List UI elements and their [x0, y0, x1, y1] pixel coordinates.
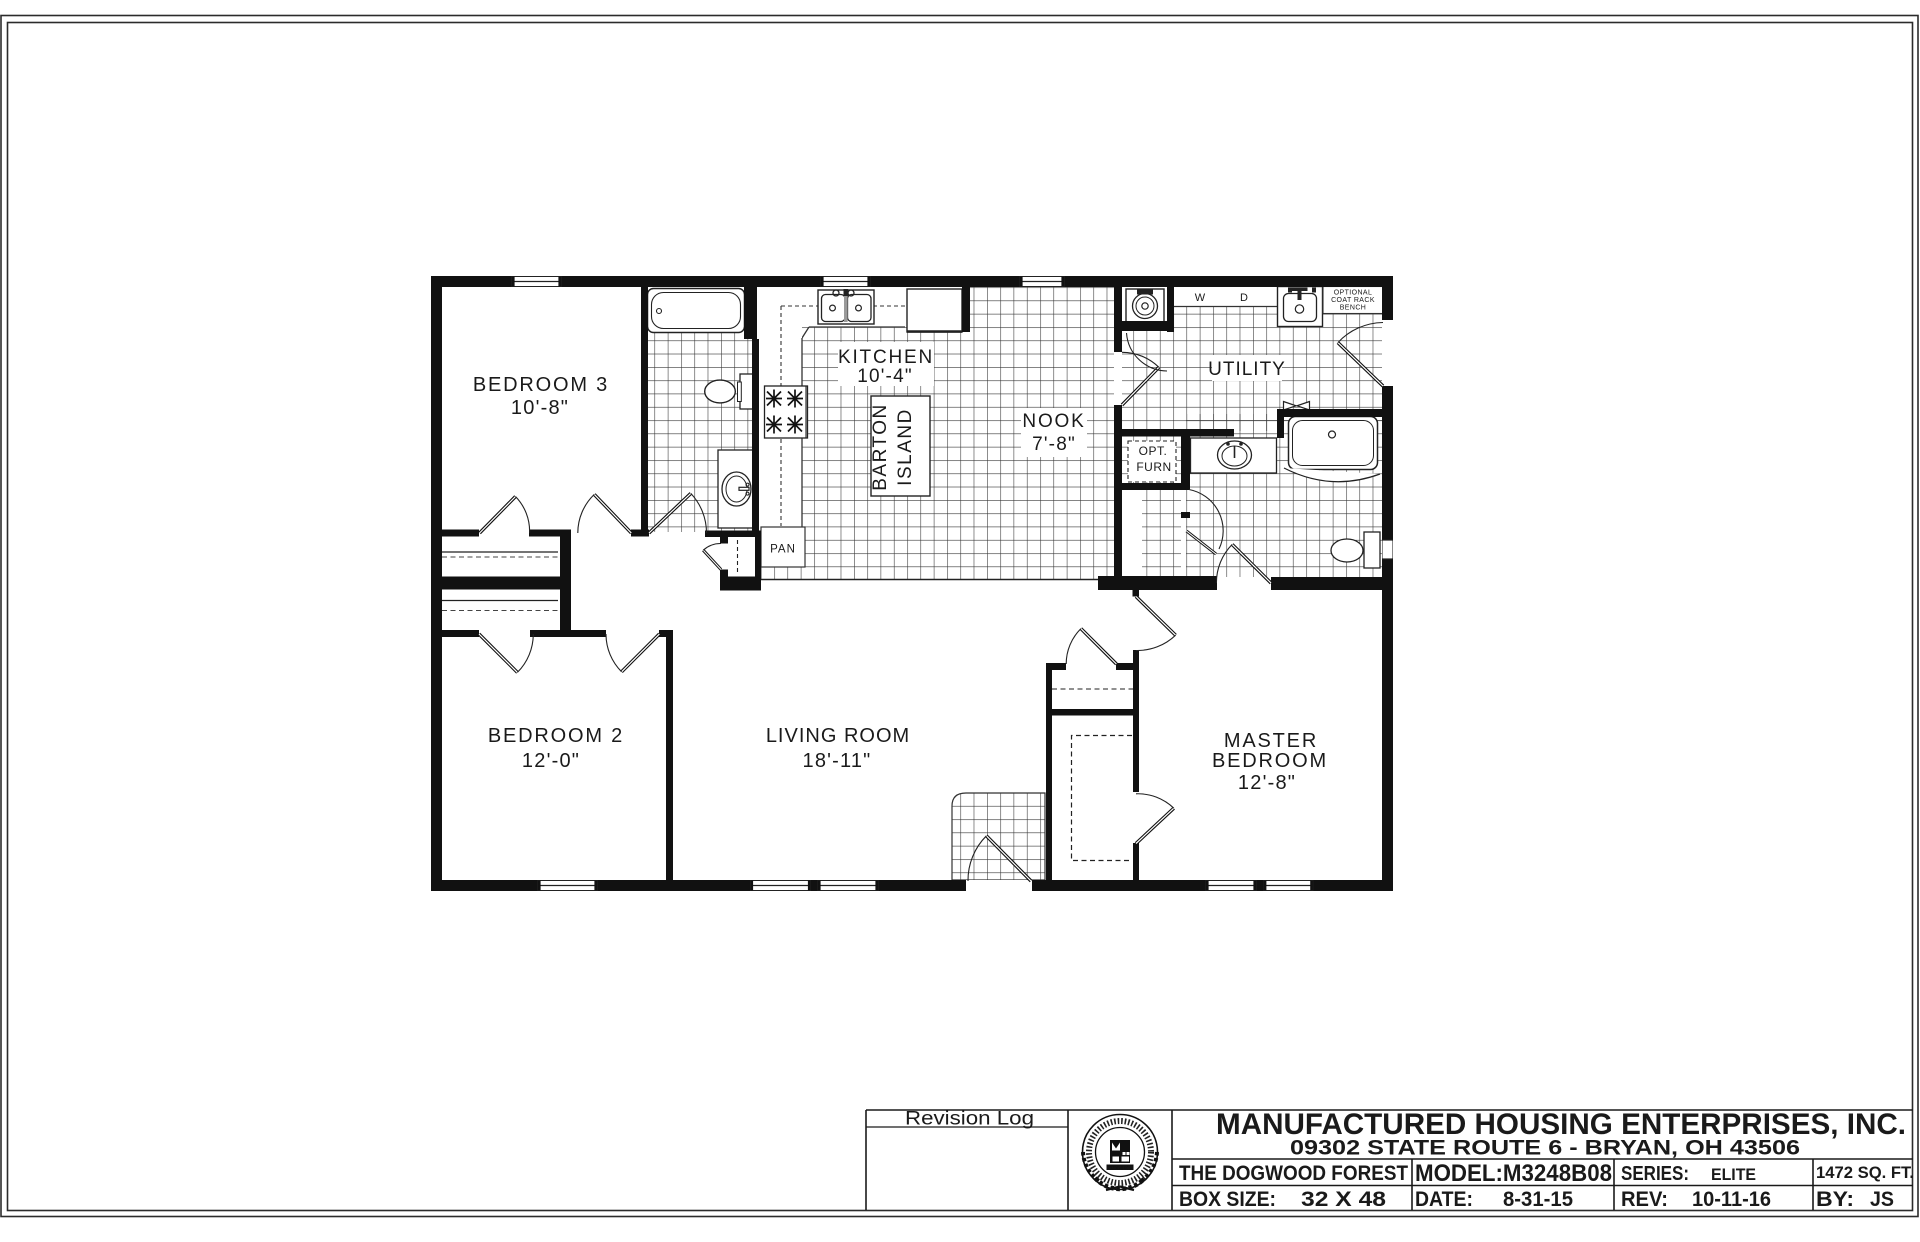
svg-text:12'-0": 12'-0"	[522, 750, 580, 772]
svg-text:D: D	[1240, 292, 1248, 304]
svg-text:1472 SQ. FT.: 1472 SQ. FT.	[1816, 1164, 1914, 1182]
svg-text:BY:: BY:	[1816, 1188, 1854, 1211]
svg-text:JS: JS	[1870, 1188, 1894, 1211]
svg-text:10'-4": 10'-4"	[857, 366, 913, 387]
svg-text:BEDROOM 2: BEDROOM 2	[488, 725, 624, 747]
svg-text:MODEL:M3248B08: MODEL:M3248B08	[1415, 1160, 1612, 1187]
svg-text:ISLAND: ISLAND	[895, 408, 916, 486]
svg-text:8-31-15: 8-31-15	[1503, 1188, 1573, 1211]
svg-text:32 X 48: 32 X 48	[1301, 1188, 1386, 1211]
svg-text:Revision Log: Revision Log	[905, 1109, 1034, 1130]
svg-text:OPT.: OPT.	[1139, 444, 1168, 458]
svg-text:10-11-16: 10-11-16	[1692, 1188, 1771, 1211]
svg-text:BOX SIZE:: BOX SIZE:	[1179, 1188, 1276, 1211]
svg-text:FURN: FURN	[1136, 460, 1171, 474]
svg-text:7'-8": 7'-8"	[1032, 434, 1076, 455]
svg-text:ELITE: ELITE	[1711, 1165, 1756, 1184]
svg-text:REV:: REV:	[1621, 1188, 1668, 1211]
svg-text:BENCH: BENCH	[1340, 305, 1367, 312]
svg-text:18'-11": 18'-11"	[803, 750, 872, 772]
svg-text:THE DOGWOOD FOREST: THE DOGWOOD FOREST	[1179, 1162, 1408, 1185]
svg-text:W: W	[1195, 292, 1206, 304]
svg-text:MASTER: MASTER	[1224, 730, 1318, 752]
svg-text:12'-8": 12'-8"	[1238, 772, 1296, 794]
svg-text:SERIES:: SERIES:	[1621, 1163, 1689, 1185]
svg-text:OPTIONAL: OPTIONAL	[1334, 290, 1373, 297]
svg-text:UTILITY: UTILITY	[1208, 359, 1286, 380]
svg-text:LIVING ROOM: LIVING ROOM	[766, 725, 910, 747]
svg-text:SINCE 1965: SINCE 1965	[1107, 1165, 1133, 1170]
svg-text:BEDROOM 3: BEDROOM 3	[473, 374, 609, 396]
svg-text:BEDROOM: BEDROOM	[1212, 750, 1328, 772]
svg-text:BARTON: BARTON	[870, 403, 891, 491]
svg-text:KITCHEN: KITCHEN	[838, 347, 934, 368]
svg-text:NOOK: NOOK	[1022, 411, 1085, 432]
svg-text:PAN: PAN	[770, 544, 796, 556]
svg-text:09302 STATE ROUTE 6 - BRYAN, O: 09302 STATE ROUTE 6 - BRYAN, OH 43506	[1290, 1137, 1800, 1160]
svg-text:COAT RACK: COAT RACK	[1331, 297, 1375, 304]
svg-text:10'-8": 10'-8"	[511, 397, 569, 419]
svg-text:DATE:: DATE:	[1415, 1188, 1473, 1211]
